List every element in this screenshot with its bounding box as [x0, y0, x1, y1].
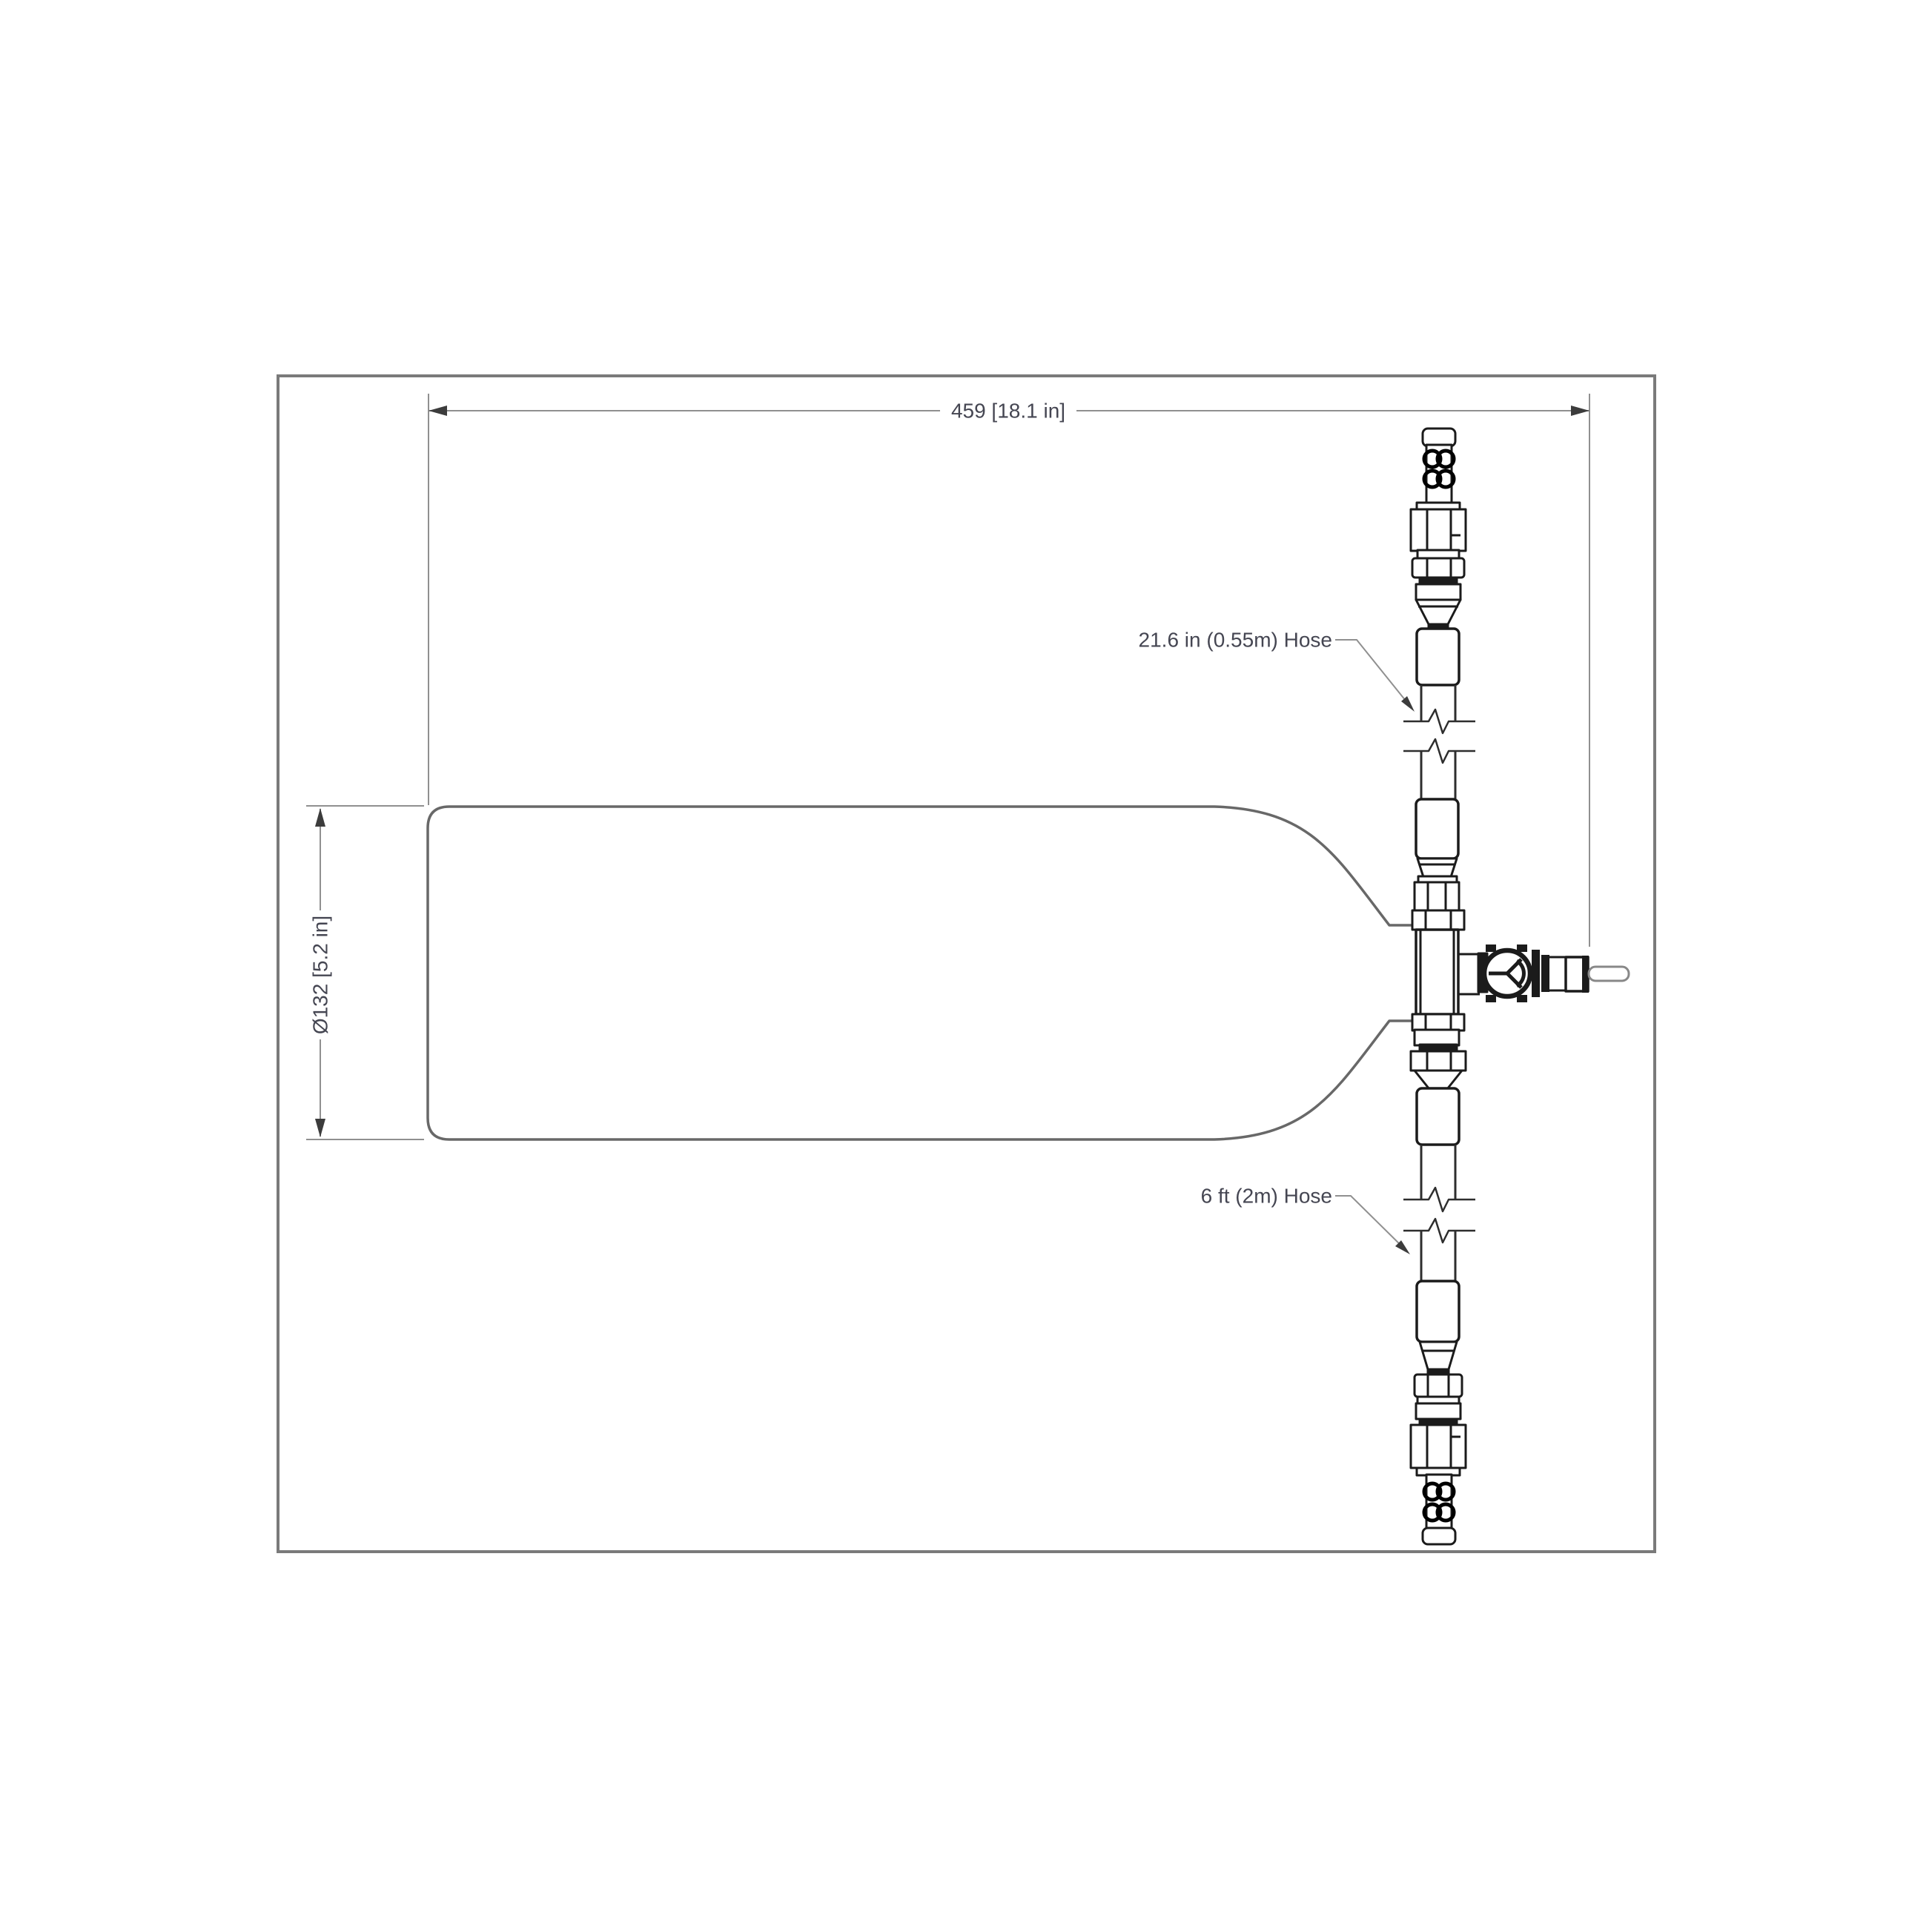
coupler-bar — [1541, 955, 1549, 992]
dimension-arrow-up — [315, 808, 325, 827]
leader-line — [1335, 640, 1412, 708]
connector-block — [1411, 1425, 1466, 1468]
hex-nut — [1415, 1374, 1462, 1397]
tee-body — [1416, 930, 1458, 1014]
diameter-dimension-text: Ø132 [5.2 in] — [309, 916, 332, 1034]
dimension-arrow-left — [429, 406, 447, 416]
union-collar — [1412, 910, 1464, 930]
lower-tee-fittings — [1411, 1014, 1466, 1145]
hose-break-line — [1403, 1219, 1475, 1243]
leader-line — [1335, 1196, 1407, 1251]
hose-ferrule — [1416, 799, 1458, 859]
hex-nut — [1415, 1030, 1459, 1045]
drawing-canvas: 459 [18.1 in] Ø132 [5.2 in] — [0, 0, 1932, 1932]
connector-cap — [1423, 1528, 1455, 1544]
hex-nut — [1411, 1051, 1466, 1071]
upper-hose — [1403, 685, 1475, 799]
hex-nut — [1415, 882, 1459, 910]
valve-lug — [1486, 945, 1496, 952]
bottom-hose-callout: 6 ft (2m) Hose — [1201, 1185, 1410, 1255]
cylinder-outline — [428, 807, 1416, 1139]
length-dimension: 459 [18.1 in] — [429, 394, 1589, 947]
taper-cone — [1415, 1071, 1462, 1089]
connector-cap — [1423, 429, 1455, 446]
dimension-arrow-right — [1571, 406, 1589, 416]
hose-break-line — [1403, 1188, 1475, 1211]
valve-lug — [1517, 995, 1527, 1002]
hose-break-line — [1403, 739, 1475, 763]
valve-lug — [1486, 995, 1496, 1002]
bottom-hose-label: 6 ft (2m) Hose — [1201, 1185, 1332, 1208]
hex-nut — [1416, 584, 1460, 600]
lower-hose — [1403, 1145, 1475, 1281]
cylinder-valve-tee — [1416, 930, 1458, 1014]
top-hose-connector — [1411, 429, 1466, 685]
hex-nut — [1412, 558, 1464, 578]
hose-ferrule — [1417, 629, 1459, 685]
hose-ferrule — [1417, 1088, 1459, 1145]
dimension-arrow-down — [315, 1119, 325, 1137]
diameter-dimension: Ø132 [5.2 in] — [306, 806, 424, 1139]
connector-block — [1411, 509, 1466, 551]
top-hose-label: 21.6 in (0.55m) Hose — [1139, 629, 1332, 652]
valve-lug — [1517, 945, 1527, 952]
valve-stem — [1589, 967, 1629, 981]
taper-cone — [1417, 859, 1457, 877]
bottom-hose-connector — [1411, 1281, 1466, 1544]
pressure-regulator — [1458, 945, 1629, 1002]
hose-break-line — [1403, 709, 1475, 733]
hose-ferrule — [1417, 1281, 1459, 1342]
technical-drawing: 459 [18.1 in] Ø132 [5.2 in] — [0, 0, 1932, 1932]
taper-cone — [1416, 600, 1460, 624]
length-dimension-text: 459 [18.1 in] — [951, 400, 1065, 423]
hex-nut — [1416, 1403, 1460, 1419]
taper-cone — [1420, 1342, 1457, 1369]
hose-assembly — [1403, 429, 1629, 1544]
upper-tee-fittings — [1412, 799, 1464, 930]
union-collar — [1412, 1014, 1464, 1030]
gas-cylinder — [428, 807, 1416, 1139]
top-hose-callout: 21.6 in (0.55m) Hose — [1139, 629, 1415, 712]
coupler-bar — [1532, 950, 1540, 997]
